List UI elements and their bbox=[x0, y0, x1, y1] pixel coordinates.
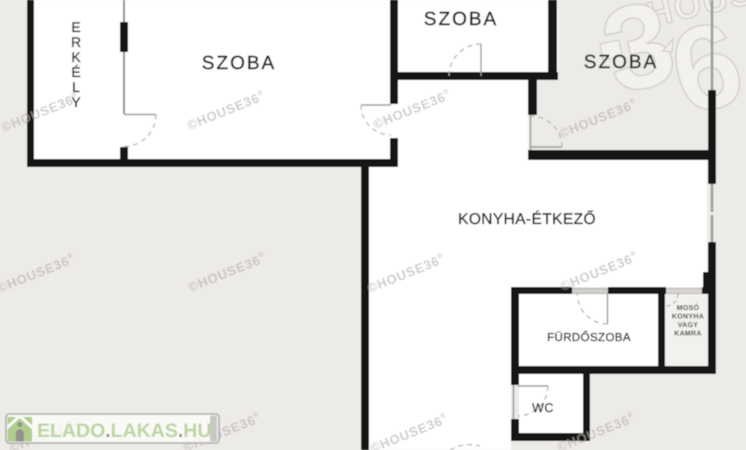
svg-text:KONYHA-ÉTKEZŐ: KONYHA-ÉTKEZŐ bbox=[458, 210, 596, 228]
svg-text:FÜRDŐSZOBA: FÜRDŐSZOBA bbox=[547, 331, 631, 344]
svg-text:K: K bbox=[71, 49, 81, 65]
svg-text:ELADO.LAKAS.HU: ELADO.LAKAS.HU bbox=[37, 420, 211, 442]
svg-text:É: É bbox=[71, 64, 80, 80]
svg-text:SZOBA: SZOBA bbox=[424, 9, 498, 30]
svg-text:R: R bbox=[71, 34, 81, 50]
svg-text:SZOBA: SZOBA bbox=[584, 52, 658, 73]
svg-text:VAGY: VAGY bbox=[678, 322, 699, 329]
svg-text:KAMRA: KAMRA bbox=[674, 331, 702, 338]
svg-text:WC: WC bbox=[532, 401, 554, 415]
svg-text:SZOBA: SZOBA bbox=[202, 53, 276, 74]
svg-text:E: E bbox=[71, 19, 80, 35]
svg-text:KONYHA: KONYHA bbox=[672, 314, 704, 321]
svg-text:MOSÓ: MOSÓ bbox=[677, 303, 700, 312]
